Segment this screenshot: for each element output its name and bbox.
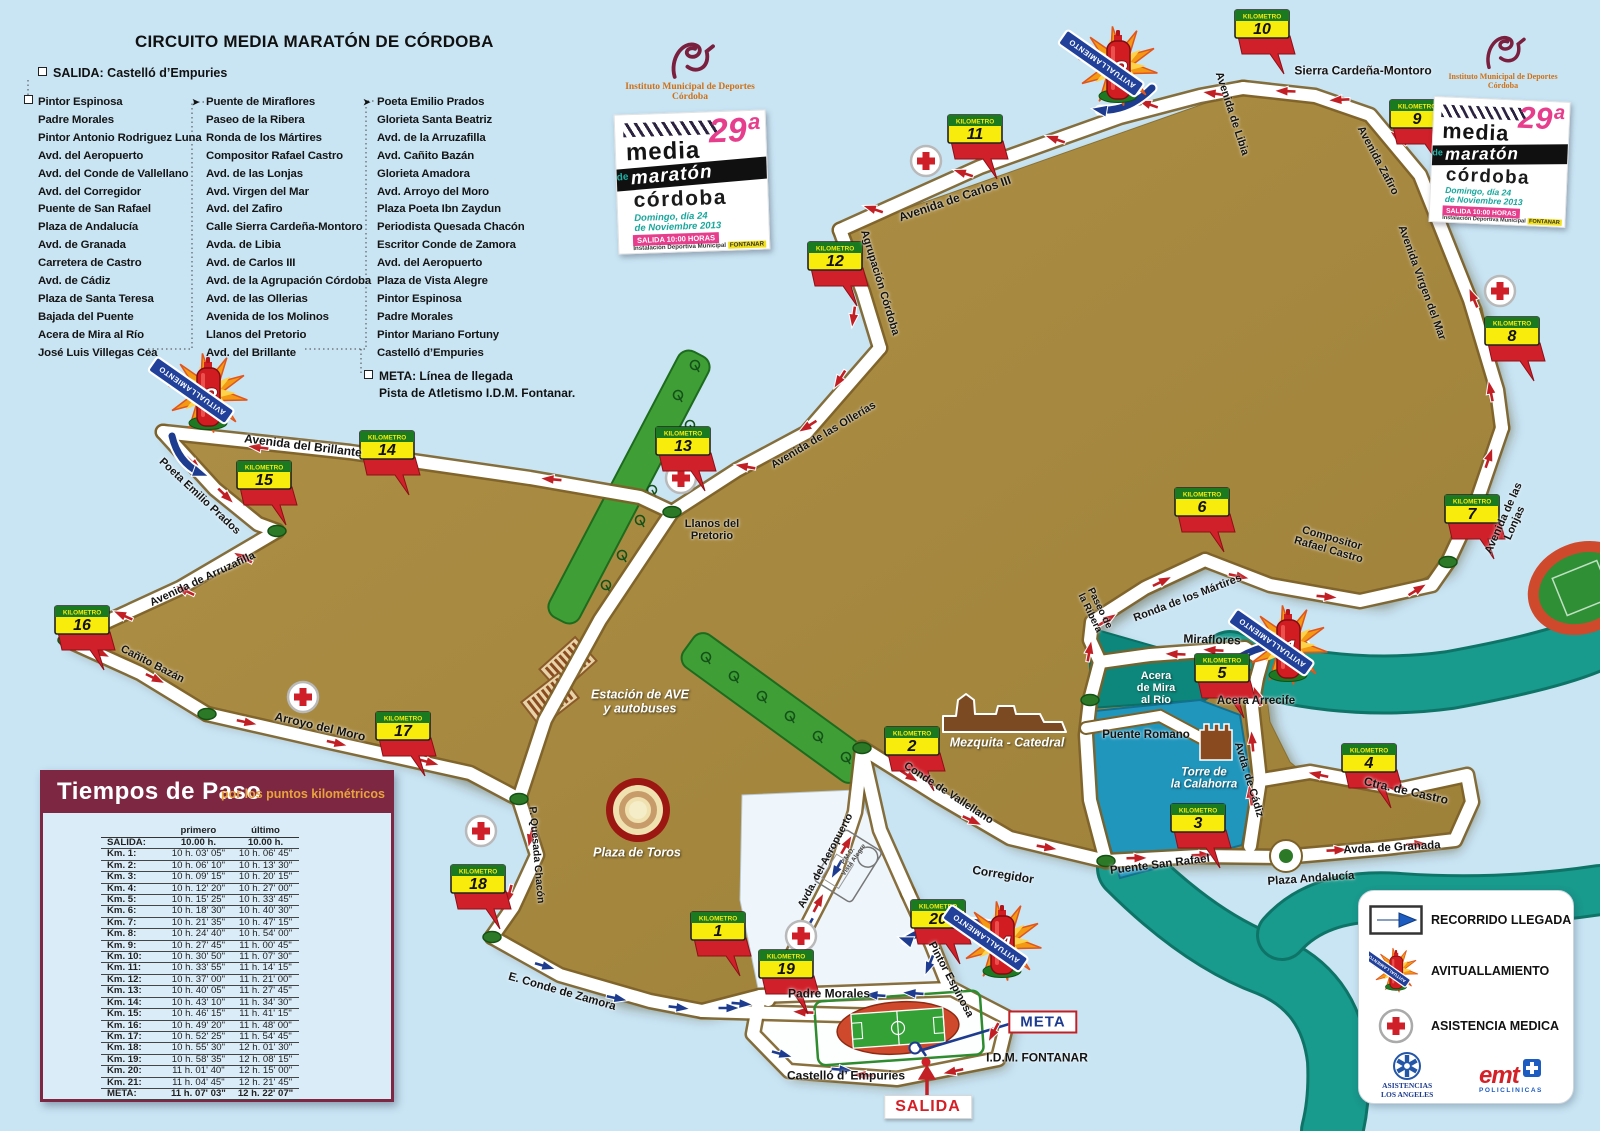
roundabout-island [198,709,216,720]
street-name: Glorieta Amadora [377,168,470,180]
row-label-cell: Km. 18: [101,1043,165,1054]
time-cell: 10 h. 46' 15" [165,1009,232,1020]
km-marker-label: KILOMETRO [1398,104,1436,111]
street-list-item: Acera de Mira al Río [24,327,202,345]
street-list-item: Plaza de Santa Teresa [24,291,202,309]
imd-logo-right: Instituto Municipal de Deportes Córdoba [1428,30,1578,90]
bullring-icon [606,778,670,842]
row-label-cell: Km. 19: [101,1054,165,1065]
table-row: Km. 16:10 h. 49' 20"11 h. 48' 00" [101,1020,299,1031]
row-label-cell: Km. 13: [101,986,165,997]
meta-sign: META [1008,1011,1077,1034]
imd-logo-line2: Córdoba [1428,81,1578,90]
poster-de: de [616,172,629,184]
time-cell: 10 h. 09' 15" [165,872,232,883]
square-bullet-icon [364,370,373,379]
street-list-item: Avd. de Carlos III [192,255,371,273]
time-cell: 11 h. 01' 40" [165,1066,232,1077]
legend-item-asistencia: ASISTENCIA MEDICA [1369,1007,1559,1045]
time-cell: 11 h. 07' 30" [232,952,299,963]
time-cell: 11 h. 54' 45" [232,1031,299,1042]
emt-logo-text: emt [1479,1062,1519,1089]
time-cell: 10 h. 33' 55" [165,963,232,974]
street-list-item: Calle Sierra Cardeña-Montoro [192,219,371,237]
table-row: Km. 6:10 h. 18' 30"10 h. 40' 30" [101,906,299,917]
arrow-bullet-icon: ➤ [363,94,377,112]
table-row: Km. 13:10 h. 40' 05"11 h. 27' 45" [101,986,299,997]
km-marker-number: 16 [73,617,91,634]
km-marker-number: 12 [826,253,844,270]
street-name: Ronda de los Mártires [206,132,322,144]
row-label-cell: Km. 17: [101,1031,165,1042]
poster-black-bar: demaratón [1429,144,1571,165]
roundabout-island [1081,695,1099,706]
time-cell: 11 h. 27' 45" [232,986,299,997]
table-row: Km. 14:10 h. 43' 10"11 h. 34' 30" [101,997,299,1008]
time-cell: 12 h. 08' 15" [232,1054,299,1065]
poster-cordoba: córdoba [633,186,727,213]
street-list-item: Ronda de los Mártires [192,130,371,148]
col-header-ultimo: último [232,825,299,838]
time-cell: 11 h. 21' 00" [232,974,299,985]
km-marker-number: 11 [967,126,984,143]
street-name: Avd. del Conde de Vallellano [38,168,188,180]
km-marker-label: KILOMETRO [1493,321,1531,328]
street-name: Paseo de la Ribera [206,114,305,126]
street-list-item: José Luis Villegas Cea [24,345,202,363]
time-cell: 12 h. 22' 07" [232,1088,299,1099]
poster-hatch-decoration [623,120,718,137]
table-row: Km. 1:10 h. 03' 05"10 h. 06' 45" [101,849,299,860]
street-list-item: Avd. de Cádiz [24,273,202,291]
km-marker-number: 3 [1194,815,1203,832]
street-name: Plaza Poeta Ibn Zaydun [377,203,501,215]
row-label-cell: Km. 3: [101,872,165,883]
roundabout-island [483,932,501,943]
km-marker-number: 6 [1198,499,1207,516]
poster-media: media [1442,119,1510,147]
street-name: Avd. de la Agrupación Córdoba [206,275,371,287]
street-list-item: Plaza Poeta Ibn Zaydun [363,201,525,219]
km-marker-number: 15 [255,472,274,489]
medical-cross-icon [466,816,496,846]
legend-label: ASISTENCIA MEDICA [1431,1019,1559,1033]
table-row: Km. 18:10 h. 55' 30"12 h. 01' 30" [101,1043,299,1054]
col-header-primero: primero [165,825,232,838]
medical-cross-icon [911,146,941,176]
street-name: Puente de San Rafael [38,203,151,215]
time-cell: 10 h. 20' 15" [232,872,299,883]
arrow-bullet-icon: ➤ [192,94,206,112]
legend-item-recorrido: RECORRIDO LLEGADA [1369,905,1571,935]
street-list-item: ➤Poeta Emilio Prados [363,94,525,112]
poster-edition: 29ª [708,113,760,149]
row-label-cell: Km. 16: [101,1020,165,1031]
poster-venue-highlight: FONTANAR [728,240,766,248]
street-name: Avd. de Granada [38,239,126,251]
street-name: Avenida de los Molinos [206,311,329,323]
street-name: Pintor Mariano Fortuny [377,329,499,341]
legend-panel: RECORRIDO LLEGADA AVITUALLAMIENTO AVITUA… [1358,890,1574,1104]
table-row: Km. 11:10 h. 33' 55"11 h. 14' 15" [101,963,299,974]
km-marker-label: KILOMETRO [1350,748,1388,755]
street-name: Pintor Espinosa [38,96,122,108]
poster-venue-highlight: FONTANAR [1527,218,1562,226]
row-label-cell: Km. 4: [101,883,165,894]
time-cell: 10 h. 58' 35" [165,1054,232,1065]
time-cell: 10 h. 15' 25" [165,895,232,906]
street-name: Avd. de las Ollerias [206,293,308,305]
roundabout-island [663,507,681,518]
time-cell: 10 h. 18' 30" [165,906,232,917]
km-marker-number: 19 [777,961,795,978]
time-cell: 10 h. 40' 05" [165,986,232,997]
imd-logo-line1: Instituto Municipal de Deportes [1428,72,1578,81]
km-marker-number: 1 [714,923,723,940]
street-name: Puente de Miraflores [206,96,315,108]
map-canvas: KILOMETRO1KILOMETRO2KILOMETRO3KILOMETRO4… [0,0,1600,1131]
table-row: Km. 17:10 h. 52' 25"11 h. 54' 45" [101,1031,299,1042]
street-name: Pintor Espinosa [377,293,461,305]
km-marker-label: KILOMETRO [368,435,406,442]
km-marker-10: KILOMETRO10 [1235,10,1295,74]
row-label-cell: Km. 2: [101,860,165,871]
time-cell: 10 h. 03' 05" [165,849,232,860]
street-list-item: Padre Morales [24,112,202,130]
time-cell: 10 h. 13' 30" [232,860,299,871]
street-name: Avd. del Zafiro [206,203,282,215]
row-label-cell: Km. 11: [101,963,165,974]
poster-maraton: maratón [1445,145,1519,165]
time-cell: 10 h. 06' 10" [165,860,232,871]
imd-calligraphy-icon [1475,30,1531,72]
street-name: Avd. del Corregidor [38,186,141,198]
table-row: Km. 19:10 h. 58' 35"12 h. 08' 15" [101,1054,299,1065]
street-name: Plaza de Andalucía [38,221,138,233]
time-cell: 10 h. 12' 20" [165,883,232,894]
emt-plus-icon [1523,1059,1541,1077]
square-bullet-icon [24,95,33,104]
km-marker-label: KILOMETRO [245,465,283,472]
salida-sign: SALIDA [884,1095,972,1119]
time-cell: 10 h. 27' 00" [232,883,299,894]
street-name: Calle Sierra Cardeña-Montoro [206,221,363,233]
row-label-cell: META: [101,1088,165,1099]
street-list-item: Compositor Rafael Castro [192,148,371,166]
roundabout-island [510,794,528,805]
street-name: Avda. de Libia [206,239,281,251]
street-name: Avd. de las Lonjas [206,168,303,180]
table-row: Km. 4:10 h. 12' 20"10 h. 27' 00" [101,883,299,894]
table-row: Km. 5:10 h. 15' 25"10 h. 33' 45" [101,895,299,906]
km-marker-label: KILOMETRO [384,716,422,723]
street-column-1: Pintor EspinosaPadre MoralesPintor Anton… [24,94,202,363]
street-name: Compositor Rafael Castro [206,150,343,162]
medical-cross-icon [786,921,816,951]
route-arrow [847,305,860,328]
street-name: Avd. del Aeropuerto [377,257,482,269]
start-point-marker [922,1058,931,1067]
street-list-item: ➤Puente de Miraflores [192,94,371,112]
street-list-item: Paseo de la Ribera [192,112,371,130]
street-name: Avd. Arroyo del Moro [377,186,489,198]
water-bottle-icon: AVITUALLAMIENTO [1369,939,1423,1003]
km-marker-label: KILOMETRO [1183,492,1221,499]
street-name: Avd. de Carlos III [206,257,295,269]
row-label-cell: SALIDA: [101,838,165,849]
table-row: Km. 2:10 h. 06' 10"10 h. 13' 30" [101,860,299,871]
street-list-item: Pintor Espinosa [24,94,202,112]
street-name: Plaza de Santa Teresa [38,293,154,305]
pass-times-panel: Tiempos de Paso por los puntos kilométri… [40,770,394,1102]
legend-label: RECORRIDO LLEGADA [1431,913,1571,927]
table-row: Km. 7:10 h. 21' 35"10 h. 47' 15" [101,917,299,928]
street-list-item: Glorieta Amadora [363,166,525,184]
row-label-cell: Km. 21: [101,1077,165,1088]
table-row: Km. 15:10 h. 46' 15"11 h. 41' 15" [101,1009,299,1020]
sponsor-asistencias: ASISTENCIAS LOS ANGELES [1381,1051,1433,1099]
street-list-item: Avd. del Aeropuerto [24,148,202,166]
time-cell: 12 h. 15' 00" [232,1066,299,1077]
roundabout-island [853,743,871,754]
row-label-cell: Km. 9: [101,940,165,951]
time-cell: 10 h. 21' 35" [165,917,232,928]
street-name: Acera de Mira al Río [38,329,144,341]
poster-de: de [1432,148,1443,158]
street-list-item: Escritor Conde de Zamora [363,237,525,255]
street-list-item: Periodista Quesada Chacón [363,219,525,237]
street-name: Plaza de Vista Alegre [377,275,488,287]
km-marker-number: 9 [1413,111,1422,128]
street-name: Pintor Antonio Rodriguez Luna [38,132,202,144]
street-list-item: Avd. de las Lonjas [192,166,371,184]
street-name: Periodista Quesada Chacón [377,221,525,233]
pass-times-subtitle: por los puntos kilométricos [221,787,385,801]
row-label-cell: Km. 12: [101,974,165,985]
table-row: Km. 3:10 h. 09' 15"10 h. 20' 15" [101,872,299,883]
medical-cross-icon [1485,276,1515,306]
meta-note-text: META: Línea de llegada Pista de Atletism… [379,368,575,402]
torre-calahorra-icon [1200,724,1232,760]
legend-label: AVITUALLAMIENTO [1431,964,1549,978]
street-name: Bajada del Puente [38,311,134,323]
street-list-item: Avd. del Zafiro [192,201,371,219]
street-column-3: ➤Poeta Emilio PradosGlorieta Santa Beatr… [363,94,525,363]
street-list-item: Pintor Antonio Rodriguez Luna [24,130,202,148]
street-list-item: Avd. del Corregidor [24,184,202,202]
imd-logo-line2: Córdoba [615,92,765,102]
street-list-item: Avda. de Libia [192,237,371,255]
km-marker-number: 7 [1468,506,1478,523]
km-marker-label: KILOMETRO [1243,14,1281,21]
time-cell: 11 h. 00' 45" [232,940,299,951]
legend-item-avituallamiento: AVITUALLAMIENTO AVITUALLAMIENTO [1369,939,1549,1003]
street-list-item: Carretera de Castro [24,255,202,273]
table-row: Km. 21:11 h. 04' 45"12 h. 21' 45" [101,1077,299,1088]
time-cell: 10.00 h. [165,838,232,849]
time-cell: 10 h. 55' 30" [165,1043,232,1054]
street-name: Glorieta Santa Beatriz [377,114,492,126]
km-marker-label: KILOMETRO [893,731,931,738]
street-name: Padre Morales [38,114,114,126]
table-header-row: primero último [101,825,299,838]
square-bullet-icon [24,94,38,112]
pass-times-header: Tiempos de Paso por los puntos kilométri… [43,773,391,813]
time-cell: 11 h. 07' 03" [165,1088,232,1099]
time-cell: 10 h. 40' 30" [232,906,299,917]
time-cell: 10.00 h. [232,838,299,849]
street-list-item: Avd. de Granada [24,237,202,255]
emt-sub-text: POLICLINICAS [1479,1087,1543,1094]
poster-edition: 29ª [1518,102,1565,135]
km-marker-label: KILOMETRO [459,869,497,876]
sponsor-asistencias-line1: ASISTENCIAS [1381,1081,1433,1090]
time-cell: 12 h. 21' 45" [232,1077,299,1088]
street-list-item: Pintor Mariano Fortuny [363,327,525,345]
sponsor-asistencias-line2: LOS ANGELES [1381,1090,1433,1099]
square-bullet-icon [38,67,47,76]
street-name: Castelló d’Empuries [377,347,484,359]
km-marker-number: 8 [1508,328,1517,345]
street-name: Padre Morales [377,311,453,323]
km-marker-label: KILOMETRO [956,119,994,126]
pass-times-table: primero último SALIDA:10.00 h.10.00 h.Km… [101,825,299,1100]
race-poster-center: 29ª media demaratón córdoba Domingo, día… [614,109,771,254]
street-list-item: Bajada del Puente [24,309,202,327]
time-cell: 10 h. 30' 50" [165,952,232,963]
table-row: META:11 h. 07' 03"12 h. 22' 07" [101,1088,299,1099]
salida-header-text: SALIDA: Castelló d’Empuries [53,66,227,80]
km-marker-number: 17 [394,723,413,740]
row-label-cell: Km. 10: [101,952,165,963]
street-name: Escritor Conde de Zamora [377,239,516,251]
time-cell: 11 h. 04' 45" [165,1077,232,1088]
km-marker-label: KILOMETRO [664,431,702,438]
time-cell: 10 h. 06' 45" [232,849,299,860]
km-marker-number: 5 [1218,665,1228,682]
street-list-item: Avd. de las Ollerias [192,291,371,309]
time-cell: 10 h. 27' 45" [165,940,232,951]
row-label-cell: Km. 5: [101,895,165,906]
km-marker-label: KILOMETRO [1453,499,1491,506]
street-list-item: Avd. Arroyo del Moro [363,184,525,202]
street-name: Poeta Emilio Prados [377,96,484,108]
km-marker-label: KILOMETRO [816,246,854,253]
table-row: Km. 12:10 h. 37' 00"11 h. 21' 00" [101,974,299,985]
time-cell: 11 h. 41' 15" [232,1009,299,1020]
street-name: Avd. de la Arruzafilla [377,132,486,144]
sponsor-emt: emt POLICLINICAS [1479,1059,1543,1094]
street-name: Avd. del Brillante [206,347,296,359]
street-list-item: Castelló d’Empuries [363,345,525,363]
table-row: Km. 9:10 h. 27' 45"11 h. 00' 45" [101,940,299,951]
street-column-2: ➤Puente de MirafloresPaseo de la RiberaR… [192,94,371,363]
medical-cross-icon [288,682,318,712]
star-of-life-icon [1392,1051,1422,1081]
street-list-item: Plaza de Vista Alegre [363,273,525,291]
row-label-cell: Km. 1: [101,849,165,860]
km-marker-number: 4 [1364,755,1374,772]
imd-logo-line1: Instituto Municipal de Deportes [615,82,765,92]
time-cell: 11 h. 34' 30" [232,997,299,1008]
time-cell: 11 h. 48' 00" [232,1020,299,1031]
km-marker-number: 2 [907,738,917,755]
meta-note: META: Línea de llegada Pista de Atletism… [364,368,575,402]
time-cell: 10 h. 52' 25" [165,1031,232,1042]
roundabout-island [1439,557,1457,568]
row-label-cell: Km. 14: [101,997,165,1008]
table-row: Km. 20:11 h. 01' 40"12 h. 15' 00" [101,1066,299,1077]
street-list-item: Padre Morales [363,309,525,327]
time-cell: 10 h. 54' 00" [232,929,299,940]
plaza-andalucia-roundabout [1270,840,1302,872]
finish-route-arrow-icon [1369,905,1423,935]
medical-cross-icon [1369,1007,1423,1045]
street-list-item: Plaza de Andalucía [24,219,202,237]
street-name: Avd. de Cádiz [38,275,110,287]
roundabout-island [1097,856,1115,867]
street-name: Llanos del Pretorio [206,329,306,341]
street-name: Avd. del Aeropuerto [38,150,143,162]
time-cell: 10 h. 49' 20" [165,1020,232,1031]
time-cell: 11 h. 14' 15" [232,963,299,974]
race-poster-right: 29ª media demaratón córdoba Domingo, día… [1429,96,1571,228]
street-list-item: Avd. del Conde de Vallellano [24,166,202,184]
km-marker-label: KILOMETRO [699,916,737,923]
street-list-item: Llanos del Pretorio [192,327,371,345]
imd-logo-center: Instituto Municipal de Deportes Córdoba [615,36,765,102]
time-cell: 10 h. 33' 45" [232,895,299,906]
km-marker-label: KILOMETRO [1179,808,1217,815]
time-cell: 10 h. 24' 40" [165,929,232,940]
street-list-item: Avd. del Brillante [192,345,371,363]
row-label-cell: Km. 7: [101,917,165,928]
table-row: Km. 8:10 h. 24' 40"10 h. 54' 00" [101,929,299,940]
arcangel-stadium-icon [1521,532,1600,644]
table-row: Km. 10:10 h. 30' 50"11 h. 07' 30" [101,952,299,963]
street-list-item: Glorieta Santa Beatriz [363,112,525,130]
street-name: Avd. Virgen del Mar [206,186,309,198]
table-row: SALIDA:10.00 h.10.00 h. [101,838,299,849]
km-marker-number: 14 [378,442,396,459]
time-cell: 10 h. 47' 15" [232,917,299,928]
street-list-item: Avd. Virgen del Mar [192,184,371,202]
street-list-item: Avd. de la Agrupación Córdoba [192,273,371,291]
street-list-item: Puente de San Rafael [24,201,202,219]
km-marker-label: KILOMETRO [63,610,101,617]
imd-calligraphy-icon [660,36,720,82]
time-cell: 10 h. 43' 10" [165,997,232,1008]
row-label-cell: Km. 20: [101,1066,165,1077]
km-marker-number: 18 [469,876,487,893]
street-name: Avd. Cañito Bazán [377,150,474,162]
table-corner-cell [101,825,165,838]
street-list-item: Avd. del Aeropuerto [363,255,525,273]
street-list-item: Pintor Espinosa [363,291,525,309]
page-title: CIRCUITO MEDIA MARATÓN DE CÓRDOBA [135,32,555,52]
time-cell: 12 h. 01' 30" [232,1043,299,1054]
km-marker-number: 10 [1253,21,1271,38]
poster-hatch-decoration [1441,104,1527,120]
km-marker-label: KILOMETRO [767,954,805,961]
row-label-cell: Km. 6: [101,906,165,917]
time-cell: 10 h. 37' 00" [165,974,232,985]
km-marker-number: 13 [674,438,692,455]
street-list-item: Avd. Cañito Bazán [363,148,525,166]
row-label-cell: Km. 15: [101,1009,165,1020]
street-list-item: Avenida de los Molinos [192,309,371,327]
street-list-item: Avd. de la Arruzafilla [363,130,525,148]
